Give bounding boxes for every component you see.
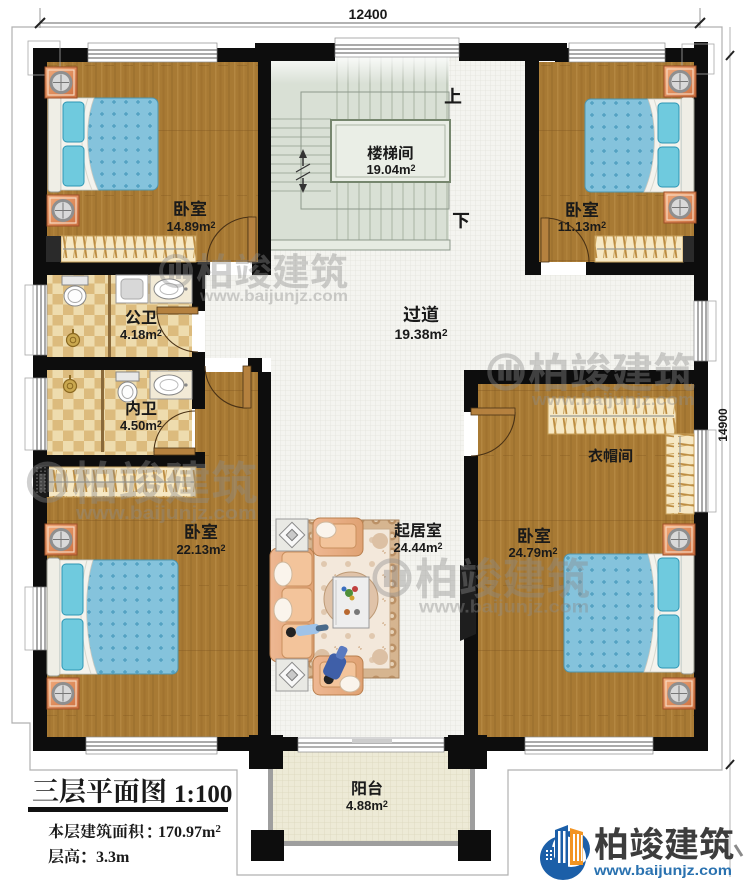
svg-text:14.89m2: 14.89m2 [166,219,215,234]
svg-text:24.79m2: 24.79m2 [508,545,557,560]
svg-text:www.baijunjz.com: www.baijunjz.com [531,390,695,409]
svg-text:www.baijunjz.com: www.baijunjz.com [199,288,348,305]
svg-text:170.97m2: 170.97m2 [158,823,221,841]
svg-text:www.baijunjz.com: www.baijunjz.com [593,862,732,878]
svg-text:19.04m2: 19.04m2 [366,162,415,177]
svg-text:4.18m2: 4.18m2 [120,327,162,342]
svg-text:1:100: 1:100 [174,781,232,808]
svg-text:14900: 14900 [716,408,730,442]
svg-text:4.88m2: 4.88m2 [346,798,388,813]
svg-text:www.baijunjz.com: www.baijunjz.com [418,596,589,616]
svg-text:12400: 12400 [349,6,388,22]
svg-text:：3.3m: ：3.3m [80,849,130,866]
svg-text:19.38m2: 19.38m2 [394,326,447,342]
svg-text:24.44m2: 24.44m2 [393,540,442,555]
svg-text:11.13m2: 11.13m2 [558,219,606,234]
svg-text:4.50m2: 4.50m2 [120,418,162,433]
svg-text:22.13m2: 22.13m2 [176,542,225,557]
svg-text:www.baijunjz.com: www.baijunjz.com [75,503,257,524]
